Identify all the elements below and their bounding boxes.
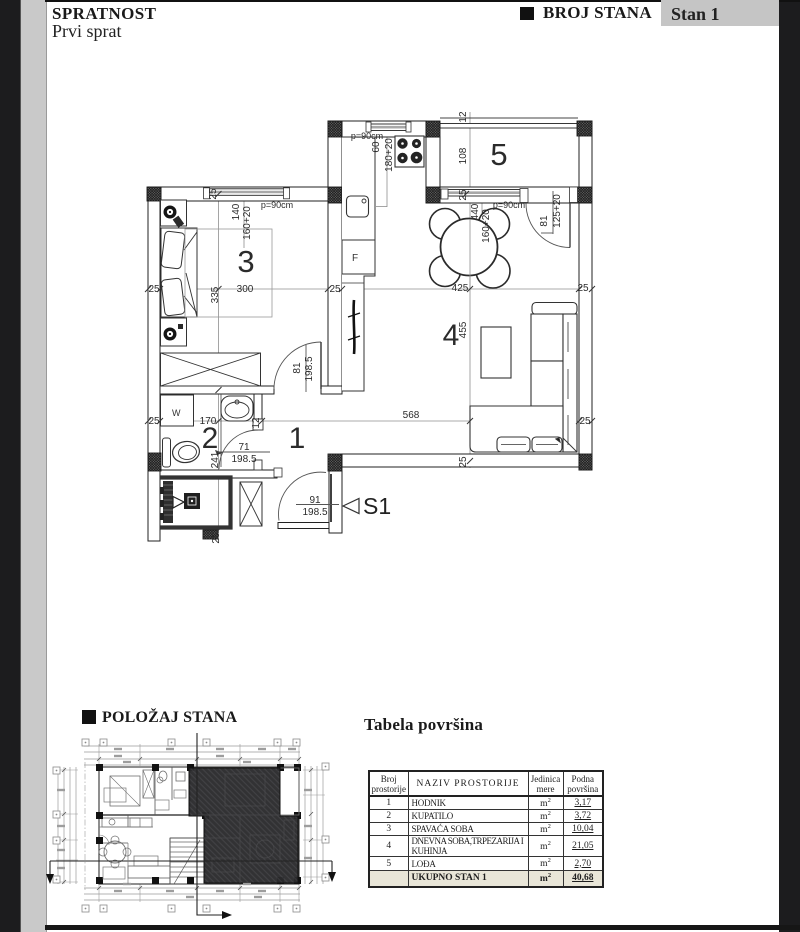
svg-text:180+20: 180+20 [384, 138, 395, 172]
svg-text:455: 455 [458, 321, 469, 338]
svg-text:3: 3 [237, 244, 254, 279]
svg-text:60: 60 [371, 141, 382, 153]
svg-text:25: 25 [579, 416, 591, 427]
svg-text:12: 12 [458, 111, 469, 123]
svg-text:25: 25 [208, 188, 219, 200]
svg-text:300: 300 [237, 284, 254, 295]
svg-text:25: 25 [329, 284, 341, 295]
svg-text:5: 5 [490, 137, 507, 172]
svg-text:25: 25 [148, 416, 160, 427]
svg-text:81: 81 [539, 215, 550, 227]
svg-text:108: 108 [458, 147, 469, 164]
svg-text:p=90cm: p=90cm [351, 131, 383, 141]
svg-text:81: 81 [292, 362, 303, 374]
svg-text:425: 425 [452, 283, 469, 294]
svg-text:25: 25 [458, 456, 469, 468]
svg-text:440: 440 [470, 203, 481, 220]
svg-text:140: 140 [231, 203, 242, 220]
svg-text:p=90cm: p=90cm [493, 200, 525, 210]
svg-text:S1: S1 [363, 493, 391, 519]
svg-text:198.5: 198.5 [304, 356, 315, 381]
svg-text:125+20: 125+20 [552, 194, 563, 228]
svg-text:160+20: 160+20 [481, 209, 492, 243]
svg-text:170: 170 [200, 416, 217, 427]
svg-text:W: W [172, 408, 181, 418]
svg-text:25: 25 [148, 284, 160, 295]
svg-text:160+20: 160+20 [242, 206, 253, 240]
svg-text:71: 71 [238, 442, 250, 453]
svg-text:568: 568 [403, 410, 420, 421]
svg-text:4: 4 [443, 319, 460, 352]
svg-text:p=90cm: p=90cm [261, 200, 293, 210]
svg-text:25: 25 [458, 189, 469, 201]
svg-text:241: 241 [210, 451, 221, 468]
svg-text:F: F [352, 253, 358, 264]
svg-text:198.5: 198.5 [231, 454, 256, 465]
svg-text:91: 91 [309, 495, 321, 506]
svg-text:1: 1 [289, 422, 306, 455]
svg-text:198.5: 198.5 [302, 507, 327, 518]
svg-text:25: 25 [211, 532, 222, 544]
